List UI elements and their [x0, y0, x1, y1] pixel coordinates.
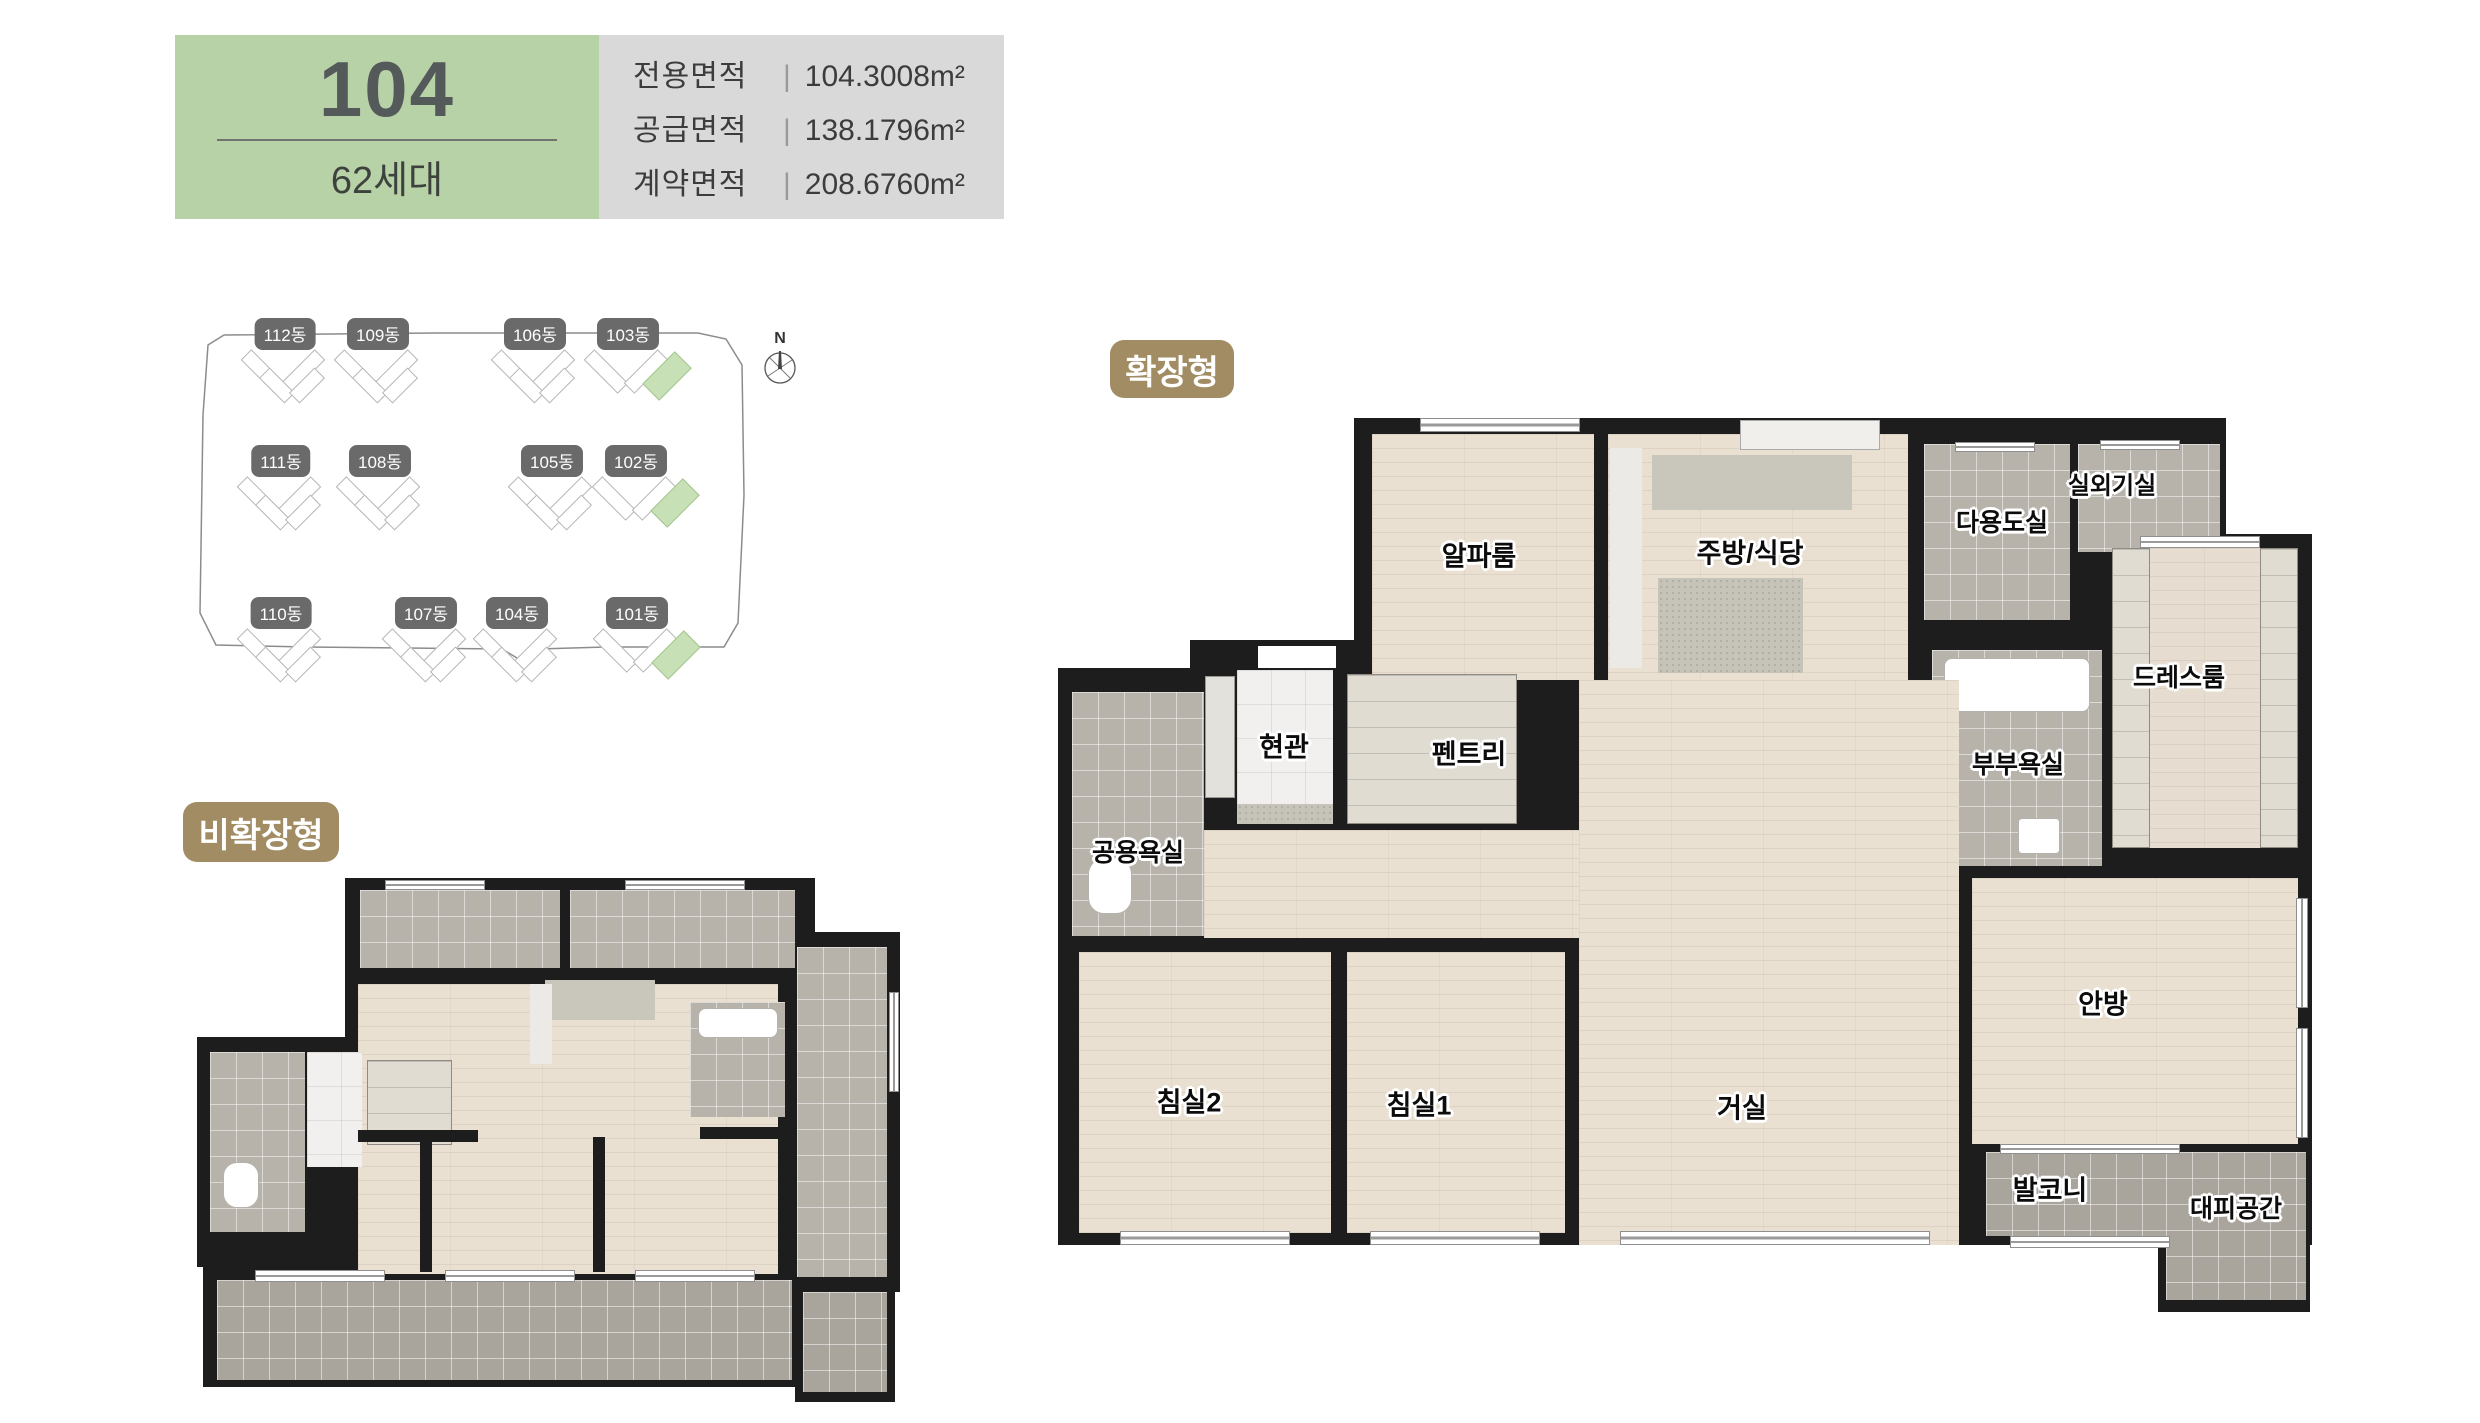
window — [2296, 898, 2308, 1008]
floor-entrance — [307, 1052, 362, 1167]
floor-front-balcony — [217, 1280, 792, 1380]
building-label-pill: 107동 — [395, 597, 457, 629]
window — [1955, 442, 2035, 452]
building-icon — [233, 627, 325, 693]
building-icon — [378, 627, 470, 693]
site-building-104: 104동 — [465, 597, 569, 697]
area-value: 104.3008m² — [805, 60, 965, 94]
wall — [358, 1130, 478, 1142]
floor-evacuation-space — [2166, 1152, 2306, 1300]
area-divider: | — [783, 168, 791, 202]
room-label-balcony: 발코니 — [2013, 1169, 2088, 1208]
window — [445, 1270, 575, 1282]
room-label-bedroom1: 침실1 — [1387, 1084, 1452, 1123]
building-label-pill: 102동 — [605, 445, 667, 477]
building-label-pill: 101동 — [606, 597, 668, 629]
building-icon — [588, 475, 680, 541]
window — [1120, 1231, 1290, 1245]
compass-label: N — [752, 330, 808, 348]
room-label-utility-room: 다용도실 — [1956, 503, 2048, 539]
building-label-pill: 112동 — [255, 318, 316, 350]
window — [635, 1270, 755, 1282]
sink-recess — [1740, 420, 1880, 450]
divider-line — [217, 139, 557, 141]
room-label-kitchen-dining: 주방/식당 — [1697, 532, 1804, 571]
building-icon — [332, 475, 424, 541]
room-label-evacuation-space: 대피공간 — [2190, 1189, 2282, 1225]
non-expanded-floor-plan — [195, 872, 905, 1412]
room-label-common-bathroom: 공용욕실 — [1092, 833, 1184, 869]
room-label-bedroom2: 침실2 — [1157, 1081, 1222, 1120]
building-label-pill: 104동 — [486, 597, 548, 629]
floor-side-balcony — [797, 947, 887, 1277]
area-value: 138.1796m² — [805, 114, 965, 148]
site-building-101: 101동 — [585, 597, 689, 697]
building-icon — [233, 475, 325, 541]
room-label-dress-room: 드레스룸 — [2133, 658, 2225, 694]
window — [1370, 1231, 1540, 1245]
wall — [420, 1137, 432, 1272]
floor-corner-balcony — [803, 1292, 887, 1392]
window — [2100, 440, 2180, 450]
window — [625, 880, 745, 890]
area-label: 공급면적 — [633, 105, 769, 149]
area-label: 계약면적 — [633, 159, 769, 203]
site-building-103: 103동 — [576, 318, 680, 418]
area-divider: | — [783, 114, 791, 148]
floor-master-bedroom — [1972, 878, 2298, 1144]
window — [889, 992, 899, 1092]
window — [385, 880, 485, 890]
unit-type-box: 104 62세대 — [175, 35, 599, 219]
unit-type-number: 104 — [175, 41, 599, 139]
floor-hall — [1204, 830, 1606, 938]
area-row-contract: 계약면적 | 208.6760m² — [633, 159, 1004, 203]
site-building-109: 109동 — [326, 318, 430, 418]
building-label-pill: 105동 — [521, 445, 583, 477]
room-label-master-bathroom: 부부욕실 — [1972, 745, 2064, 781]
building-label-pill: 108동 — [349, 445, 411, 477]
area-divider: | — [783, 60, 791, 94]
floor-living-room — [1579, 680, 1959, 1245]
expanded-floor-plan: 알파룸 주방/식당 다용도실 실외기실 드레스룸 부부욕실 현관 펜트리 공용욕… — [1058, 418, 2310, 1318]
brochure-page: 104 62세대 전용면적 | 104.3008m² 공급면적 | 138.17… — [0, 0, 2480, 1423]
window — [2010, 1236, 2170, 1248]
room-label-entrance: 현관 — [1259, 726, 1309, 765]
window — [2140, 536, 2260, 548]
non-expanded-type-badge: 비확장형 — [183, 802, 339, 862]
building-icon — [237, 348, 329, 414]
room-label-living-room: 거실 — [1717, 1087, 1767, 1126]
room-label-pantry: 펜트리 — [1432, 733, 1507, 772]
floor-rear-balcony — [570, 890, 795, 968]
site-building-107: 107동 — [374, 597, 478, 697]
compass-icon — [760, 348, 800, 388]
expanded-type-badge: 확장형 — [1110, 340, 1234, 398]
window — [1620, 1231, 1930, 1245]
area-row-exclusive: 전용면적 | 104.3008m² — [633, 51, 1004, 95]
building-icon — [330, 348, 422, 414]
dress-room-closet — [2112, 548, 2150, 848]
wall — [593, 1137, 605, 1272]
building-icon — [504, 475, 596, 541]
building-label-pill: 106동 — [504, 318, 566, 350]
bathtub — [698, 1008, 778, 1038]
entrance-step — [1237, 804, 1333, 824]
window — [2000, 1144, 2180, 1154]
window — [255, 1270, 385, 1282]
room-label-ac-outdoor-unit-room: 실외기실 — [2068, 466, 2156, 501]
entrance-door — [1258, 646, 1336, 668]
site-building-111: 111동 — [229, 445, 333, 545]
area-value: 208.6760m² — [805, 168, 965, 202]
site-plan: 112동 109동 106동 103동 111동 108동 105동 102 — [186, 295, 761, 665]
floor-bedroom1 — [1347, 952, 1565, 1233]
site-building-110: 110동 — [229, 597, 333, 697]
household-count: 62세대 — [175, 149, 599, 204]
toilet — [223, 1162, 259, 1208]
sink — [2018, 818, 2060, 854]
kitchen-counter — [1652, 455, 1852, 510]
building-label-pill: 111동 — [251, 445, 310, 477]
building-label-pill: 103동 — [597, 318, 659, 350]
wall — [700, 1127, 785, 1139]
bathtub — [1944, 658, 2090, 712]
site-building-108: 108동 — [328, 445, 432, 545]
site-building-106: 106동 — [483, 318, 587, 418]
area-row-supply: 공급면적 | 138.1796m² — [633, 105, 1004, 149]
building-icon — [589, 627, 681, 693]
area-table: 전용면적 | 104.3008m² 공급면적 | 138.1796m² 계약면적… — [599, 35, 1004, 219]
kitchen-island — [1658, 578, 1803, 673]
window — [2296, 1028, 2308, 1138]
site-building-112: 112동 — [233, 318, 337, 418]
room-label-alpha-room: 알파룸 — [1442, 535, 1517, 574]
kitchen-counter-white — [530, 984, 552, 1064]
building-icon — [469, 627, 561, 693]
building-label-pill: 109동 — [347, 318, 409, 350]
dress-room-closet — [2260, 548, 2298, 848]
kitchen-counter-white — [1610, 448, 1642, 668]
kitchen-counter — [545, 980, 655, 1020]
window — [1420, 418, 1580, 432]
building-icon — [580, 348, 672, 414]
room-label-master-bedroom: 안방 — [2078, 983, 2128, 1022]
floor-bathroom — [210, 1052, 305, 1232]
area-label: 전용면적 — [633, 51, 769, 95]
shoe-closet — [1205, 676, 1235, 798]
compass: N — [752, 330, 808, 400]
site-building-102: 102동 — [584, 445, 688, 545]
building-icon — [487, 348, 579, 414]
building-label-pill: 110동 — [251, 597, 312, 629]
floor-rear-balcony — [360, 890, 560, 968]
